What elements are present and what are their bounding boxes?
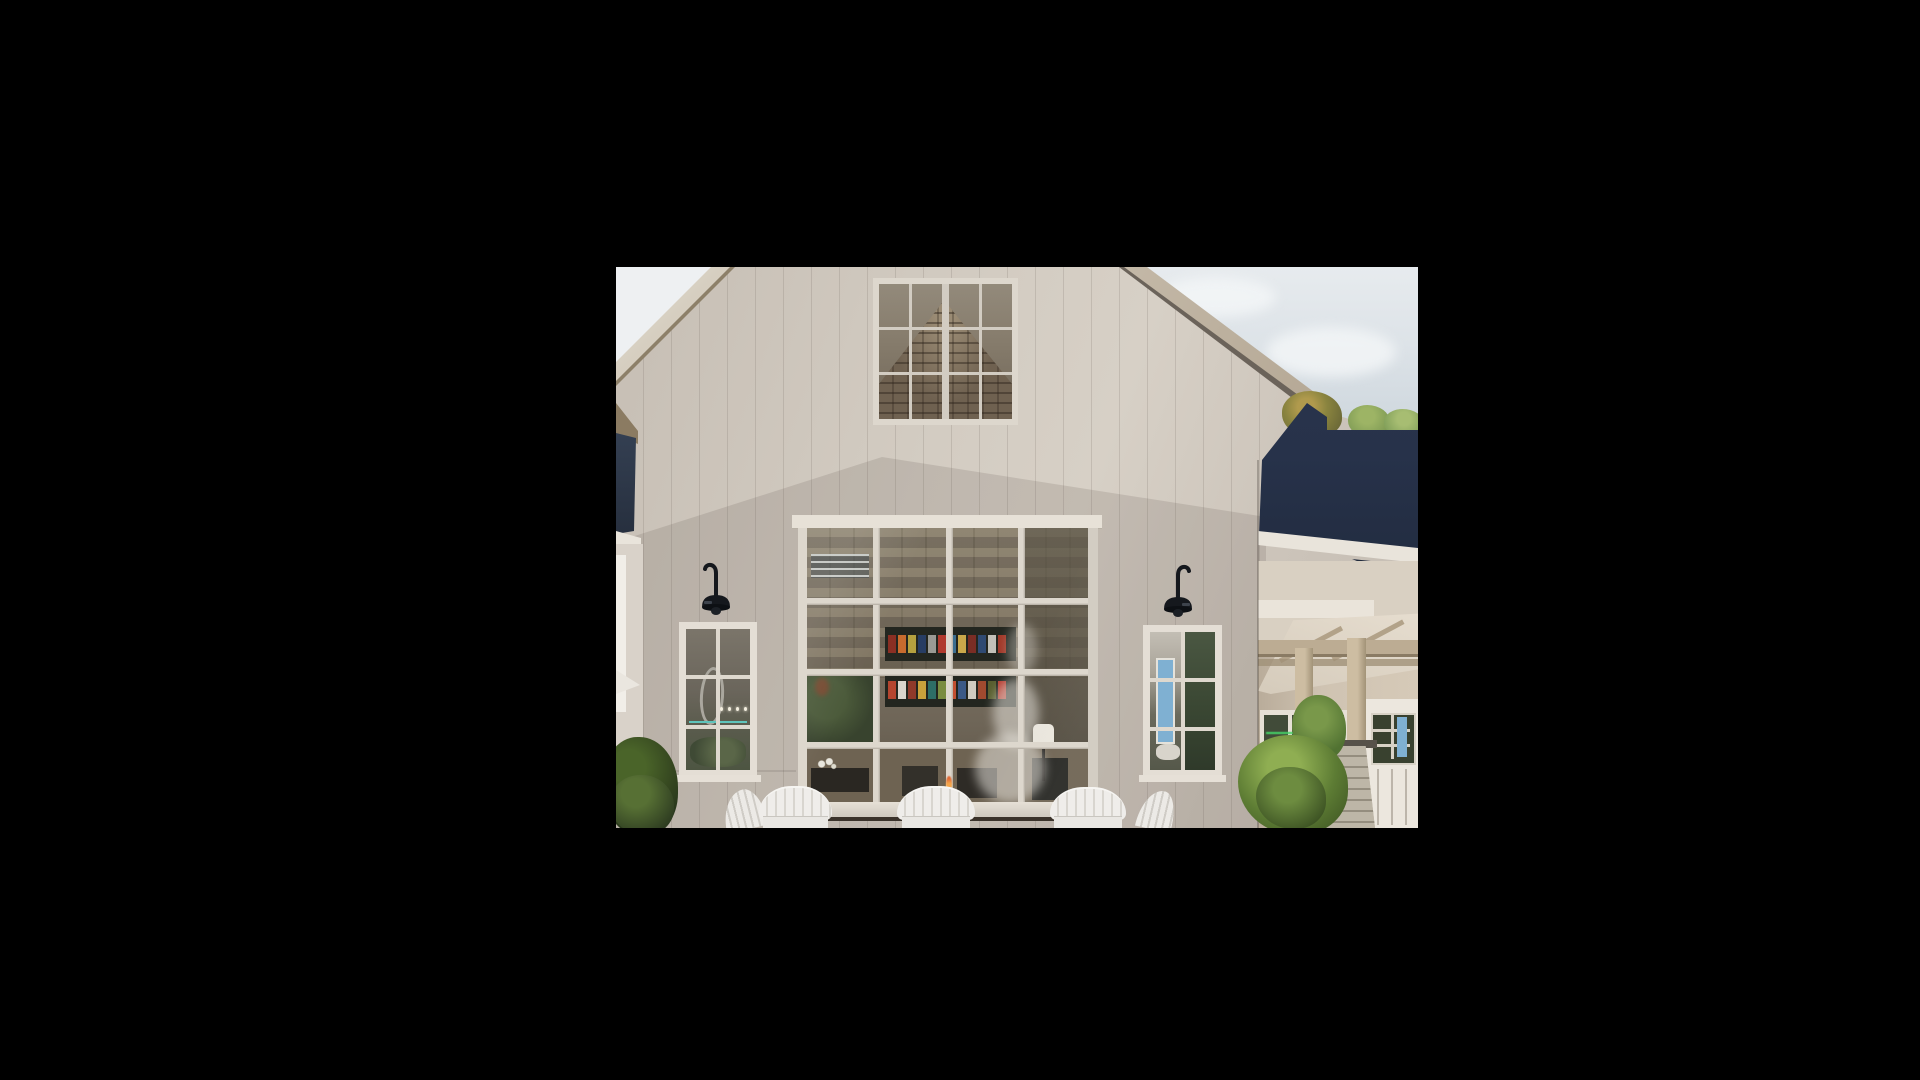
left-window-glass (686, 629, 750, 770)
door-panel-line (1391, 769, 1393, 825)
window-wall-left-trim (798, 528, 807, 821)
pendant-light (720, 707, 723, 711)
attic-mullion (909, 284, 912, 419)
window-mullion (686, 725, 750, 729)
porch-post (1347, 638, 1366, 750)
pendant-light (728, 707, 731, 711)
window-wall-right-trim (1088, 528, 1098, 821)
window-mullion (1150, 727, 1215, 731)
attic-window-glass (879, 284, 1012, 419)
white-furniture-reflection (1156, 744, 1180, 760)
window-mullion (1150, 678, 1215, 682)
cloud (1266, 327, 1396, 377)
right-window (1143, 625, 1222, 777)
blue-interior-door (1156, 658, 1175, 744)
window-wall-mullion (1018, 528, 1025, 802)
door-panel-line (1405, 769, 1407, 825)
green-glow-line (1266, 732, 1294, 734)
window-wall-mullion (807, 598, 1088, 605)
blue-glass-reflection (1397, 717, 1407, 757)
screen: { "viewer": { "background": "#000000", "… (0, 0, 1920, 1080)
porch-beam (1258, 659, 1418, 666)
window-wall-header-trim (792, 515, 1102, 529)
pendant-light (744, 707, 747, 711)
window-wall-glass (807, 528, 1088, 802)
right-window-glass (1150, 632, 1215, 770)
porch-header-band (1258, 600, 1374, 618)
window-wall-mullion (946, 528, 953, 802)
adirondack-chair-seatback (763, 816, 828, 828)
pendant-lights (720, 701, 750, 715)
porch-beam (1258, 640, 1418, 657)
left-window (679, 622, 757, 777)
carriage-door (1365, 699, 1418, 828)
door-window-mullion (1391, 715, 1394, 759)
attic-center-mullion (942, 284, 949, 419)
window-wall-mullion (807, 742, 1088, 749)
left-window-sill (675, 775, 761, 782)
window-wall-mullion (807, 669, 1088, 676)
window-mullion (1181, 632, 1185, 770)
window-wall-mullion (873, 528, 880, 802)
gooseneck-sconce-left (696, 557, 732, 619)
architectural-rendering-image (616, 267, 1418, 828)
adirondack-chair-seatback (902, 816, 970, 828)
gooseneck-sconce-right (1162, 559, 1198, 621)
window-mullion (716, 629, 720, 770)
window-mullion (686, 675, 750, 679)
attic-mullion (879, 372, 1012, 375)
right-window-sill (1139, 775, 1226, 782)
attic-window (873, 278, 1018, 425)
attic-mullion (879, 327, 1012, 330)
right-topiary-base (1256, 767, 1326, 828)
foliage-reflection (1184, 632, 1215, 770)
pendant-light (736, 707, 739, 711)
door-panel-line (1377, 769, 1379, 825)
door-window (1371, 713, 1416, 765)
attic-mullion (979, 284, 982, 419)
adirondack-chair-seatback (1054, 816, 1122, 828)
